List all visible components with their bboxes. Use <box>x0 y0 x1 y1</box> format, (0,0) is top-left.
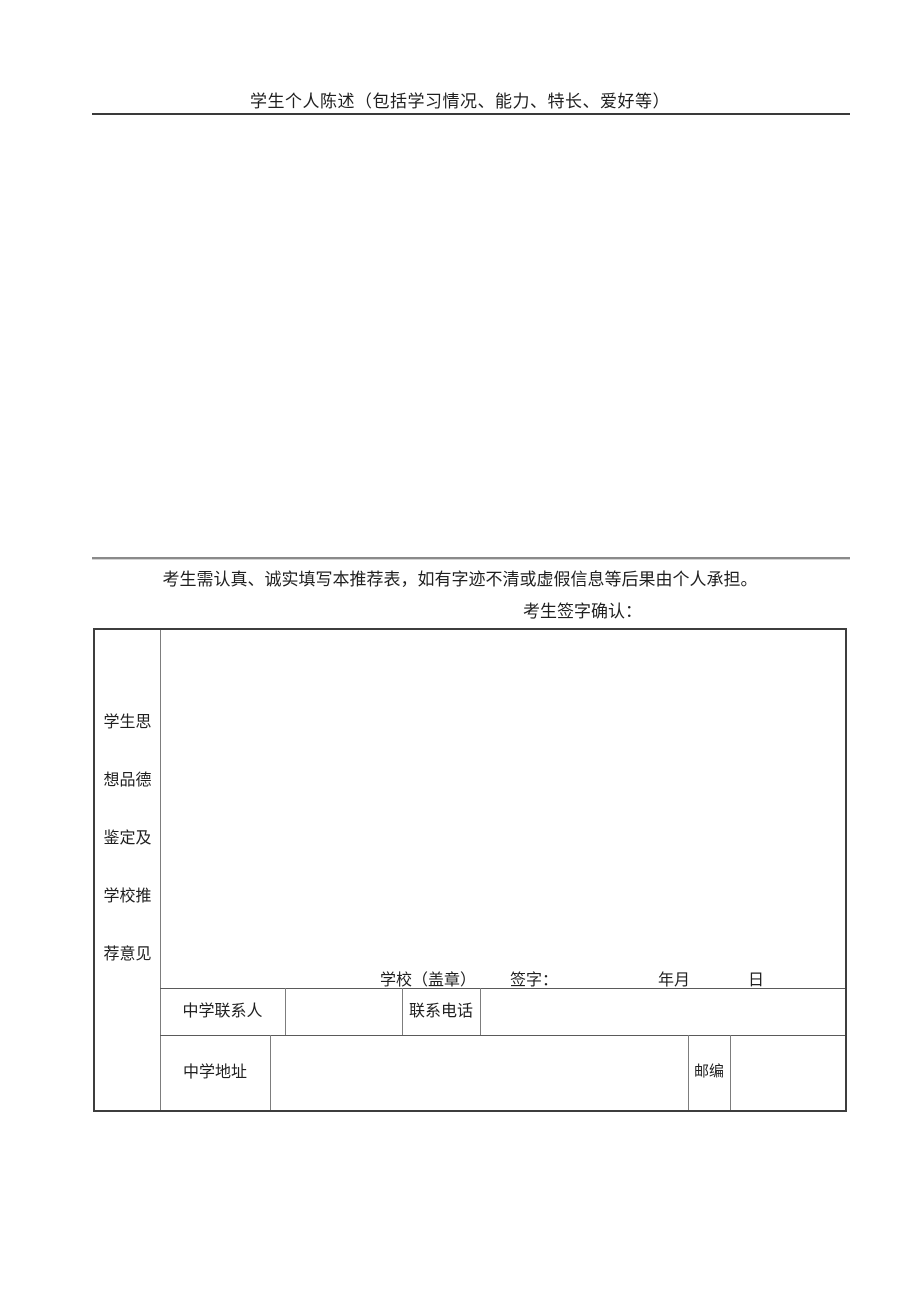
notice-text: 考生需认真、诚实填写本推荐表，如有字迹不清或虚假信息等后果由个人承担。 <box>0 565 920 590</box>
sign-label: 签字： <box>510 966 558 990</box>
side-label-moral-assessment: 学生思 想品德 鉴定及 学校推 荐意见 <box>95 694 160 984</box>
contact-person-label: 中学联系人 <box>160 988 285 1035</box>
recommendation-table: 学生思 想品德 鉴定及 学校推 荐意见 学校（盖章） 签字： 年月 日 中学联系… <box>93 628 847 1112</box>
contact-phone-label: 联系电话 <box>402 988 480 1035</box>
contact-person-input-cell[interactable] <box>286 989 401 1034</box>
personal-statement-area[interactable] <box>93 118 850 550</box>
school-address-input-cell[interactable] <box>271 1036 687 1109</box>
title-underline <box>92 113 850 115</box>
document-page: 学生个人陈述（包括学习情况、能力、特长、爱好等） 考生需认真、诚实填写本推荐表，… <box>0 0 920 1301</box>
moral-assessment-area[interactable] <box>161 630 845 960</box>
statement-title: 学生个人陈述（包括学习情况、能力、特长、爱好等） <box>0 87 920 112</box>
postcode-input-cell[interactable] <box>731 1036 844 1109</box>
postcode-label: 邮编 <box>688 1035 730 1110</box>
sign-confirm-label: 考生签字确认： <box>523 597 642 622</box>
school-seal-label: 学校（盖章） <box>380 966 476 990</box>
year-month-label: 年月 <box>658 966 690 990</box>
contact-phone-input-cell[interactable] <box>481 989 844 1034</box>
school-address-label: 中学地址 <box>160 1035 270 1110</box>
section-divider <box>92 557 850 560</box>
day-label: 日 <box>748 966 764 990</box>
